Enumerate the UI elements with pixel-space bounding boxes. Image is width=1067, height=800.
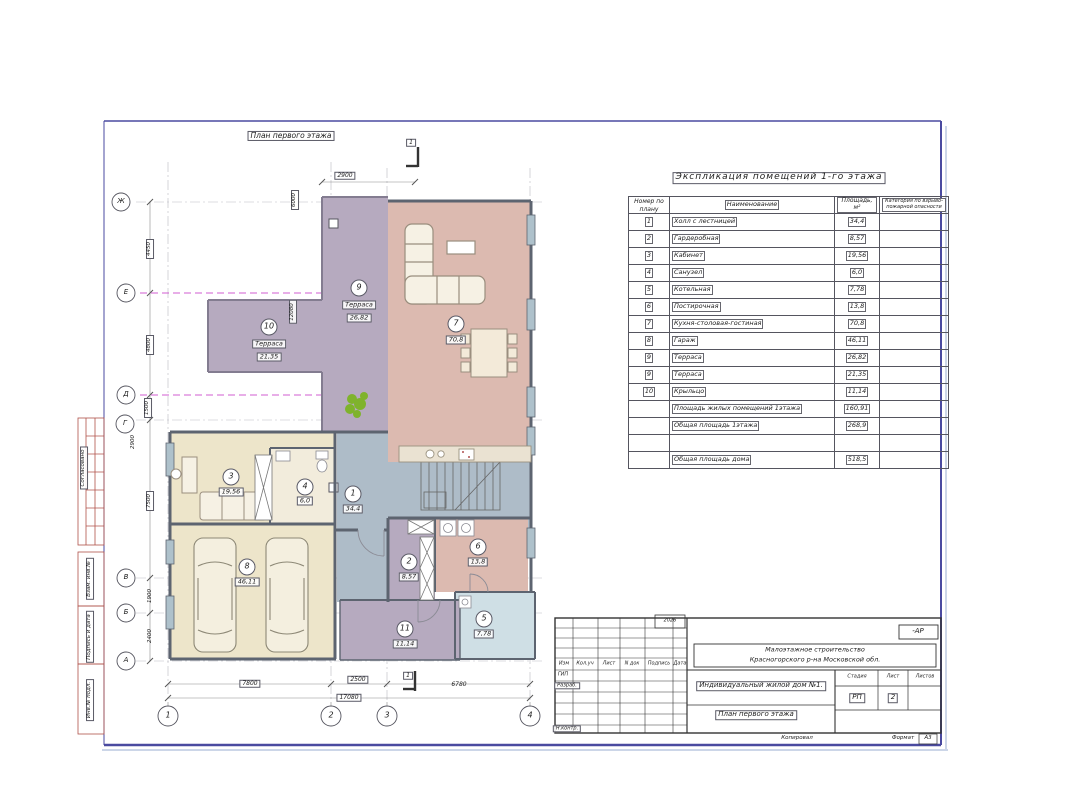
row-num (629, 435, 670, 452)
room-6-area: 13,8 (468, 557, 488, 566)
stamp-year: 2026 (664, 618, 677, 623)
row-area: 26,82 (835, 350, 880, 367)
room-4-number: 4 (297, 479, 314, 496)
row-area (835, 435, 880, 452)
stamp-stage-label: Стадия (847, 674, 866, 679)
cell-num: 4 (645, 268, 653, 277)
cell-area: 8,57 (848, 234, 866, 243)
axis-left-e: Е (124, 289, 128, 297)
room-3-area: 19,56 (219, 487, 244, 496)
section-mark-top: 1 (406, 139, 416, 147)
cell-area: 11,14 (846, 387, 869, 396)
margin-label-inv-podl: Инв.№ подл. (86, 679, 94, 721)
stamp-object-name: Индивидуальный жилой дом №1. (696, 681, 826, 691)
section-mark-bottom: 1 (403, 672, 413, 680)
row-category (880, 265, 949, 282)
table-row: 10Крыльцо11,14 (629, 384, 949, 401)
axis-left-d: Д (123, 391, 128, 399)
dim-bottom-3: 6780 (451, 682, 466, 688)
row-num: 9 (629, 350, 670, 367)
dim-top: 2900 (334, 172, 355, 180)
table-row: 8Гараж46,11 (629, 333, 949, 350)
room-8-area: 46,11 (235, 577, 260, 586)
row-name: Общая площадь 1этажа (670, 418, 835, 435)
row-category (880, 299, 949, 316)
row-name: Площадь жилых помещений 1этажа (670, 401, 835, 418)
room-11-number: 11 (397, 621, 414, 638)
cell-area: 19,56 (846, 251, 869, 260)
table-row: 9Терраса21,35 (629, 367, 949, 384)
row-category (880, 350, 949, 367)
row-num: 9 (629, 367, 670, 384)
row-name: Холл с лестницей (670, 214, 835, 231)
row-category (880, 248, 949, 265)
row-name: Терраса (670, 350, 835, 367)
room-7-number: 7 (448, 316, 465, 333)
table-row: 4Санузел6,0 (629, 265, 949, 282)
cell-area: 160,91 (844, 404, 871, 413)
header-area-text: Площадь, м² (837, 197, 877, 213)
dim-bottom-2: 2500 (347, 676, 368, 684)
row-area: 19,56 (835, 248, 880, 265)
dim-bottom-total: 17080 (336, 694, 361, 702)
header-category-text: Категория по взрыво-пожарной опасности (882, 198, 946, 212)
row-category (880, 367, 949, 384)
room-10-area: 21,35 (257, 352, 282, 361)
row-num (629, 452, 670, 469)
dim-bottom-1: 7800 (239, 680, 260, 688)
dim-left-4: 7500 (146, 491, 154, 511)
row-num: 10 (629, 384, 670, 401)
cell-num: 9 (645, 353, 653, 362)
cell-num: 5 (645, 285, 653, 294)
stamp-role-gip: ГИП (558, 672, 568, 677)
cell-num: 3 (645, 251, 653, 260)
stamp-stage-value: РП (849, 693, 865, 703)
table-row-summary: Общая площадь 1этажа268,9 (629, 418, 949, 435)
table-row-summary: Площадь жилых помещений 1этажа160,91 (629, 401, 949, 418)
header-num: Номер по плану (629, 197, 670, 214)
row-num (629, 401, 670, 418)
cell-area: 26,82 (846, 353, 869, 362)
row-category (880, 231, 949, 248)
row-area: 34,4 (835, 214, 880, 231)
stamp-format-label: Формат (892, 736, 914, 742)
room-4-area: 6,0 (297, 496, 313, 505)
stamp-listov-label: Листов (916, 674, 935, 679)
stamp-list-label: Лист (887, 674, 900, 679)
stamp-role-nkontr: Н.контр. (553, 725, 581, 732)
row-name: Кабинет (670, 248, 835, 265)
row-name: Постирочная (670, 299, 835, 316)
stamp-col-list: Лист (603, 661, 616, 666)
dim-left-3: 1500 (144, 398, 152, 418)
room-2-number: 2 (401, 554, 418, 571)
room-11-area: 11,14 (393, 639, 418, 648)
cell-name: Общая площадь дома (672, 455, 751, 464)
table-row: 5Котельная7,78 (629, 282, 949, 299)
margin-label-podpis-data: Подпись и дата (86, 611, 94, 663)
room-5-number: 5 (476, 611, 493, 628)
table-row: 3Кабинет19,56 (629, 248, 949, 265)
row-num: 3 (629, 248, 670, 265)
stamp-doc-title: План первого этажа (715, 710, 797, 720)
stamp-org-line1: Малоэтажное строительство (765, 646, 865, 653)
row-area: 268,9 (835, 418, 880, 435)
room-3-number: 3 (223, 469, 240, 486)
row-num: 1 (629, 214, 670, 231)
row-area: 46,11 (835, 333, 880, 350)
room-6-number: 6 (470, 539, 487, 556)
room-9-area: 26,82 (347, 313, 372, 322)
dim-left-extra: 2900 (131, 435, 137, 449)
cell-name: Кухня-столовая-гостиная (672, 319, 763, 328)
row-category (880, 316, 949, 333)
cell-area: 21,35 (846, 370, 869, 379)
row-name: Гардеробная (670, 231, 835, 248)
row-area: 11,14 (835, 384, 880, 401)
axis-left-a: А (124, 657, 129, 665)
cell-name: Терраса (672, 353, 704, 362)
cell-name: Крыльцо (672, 387, 706, 396)
room-7-area: 70,8 (446, 335, 466, 344)
stamp-format-value: А3 (924, 736, 931, 742)
cell-name: Санузел (672, 268, 704, 277)
plan-title: План первого этажа (248, 131, 335, 141)
row-area: 160,91 (835, 401, 880, 418)
cell-name: Котельная (672, 285, 713, 294)
cell-area: 518,5 (846, 455, 869, 464)
explication-table: Номер по плану Наименование Площадь, м² … (628, 196, 949, 469)
row-category (880, 333, 949, 350)
stamp-col-izm: Изм (559, 661, 569, 666)
cell-name: Постирочная (672, 302, 721, 311)
dim-vert-6000: 6000 (291, 190, 299, 210)
axis-bottom-1: 1 (165, 712, 170, 721)
axis-bottom-2: 2 (328, 712, 333, 721)
dim-left-6: 2400 (148, 629, 154, 643)
row-name: Общая площадь дома (670, 452, 835, 469)
row-name (670, 435, 835, 452)
margin-label-vzam-inv: Взам. инв.№ (86, 558, 94, 600)
cell-name: Гараж (672, 336, 698, 345)
cell-num: 6 (645, 302, 653, 311)
margin-label-soglasovano: Согласовано (80, 447, 88, 490)
stamp-org-line2: Красногорского р-на Московской обл. (750, 656, 881, 663)
cell-area: 7,78 (848, 285, 866, 294)
header-num-text: Номер по плану (634, 198, 664, 213)
cell-name: Общая площадь 1этажа (672, 421, 759, 430)
cell-area: 6,0 (850, 268, 864, 277)
row-num: 4 (629, 265, 670, 282)
header-area: Площадь, м² (835, 197, 880, 214)
cell-area: 70,8 (848, 319, 866, 328)
cell-num: 2 (645, 234, 653, 243)
cell-name: Площадь жилых помещений 1этажа (672, 404, 802, 413)
dim-left-1: 4450 (146, 239, 154, 259)
room-10-name: Терраса (252, 339, 286, 348)
room-9-name: Терраса (342, 300, 376, 309)
row-num: 6 (629, 299, 670, 316)
table-row: 7Кухня-столовая-гостиная70,8 (629, 316, 949, 333)
cell-name: Кабинет (672, 251, 705, 260)
cell-num: 8 (645, 336, 653, 345)
row-name: Терраса (670, 367, 835, 384)
axis-left-v: В (124, 574, 129, 582)
table-row: 6Постирочная13,8 (629, 299, 949, 316)
table-row-total: Общая площадь дома518,5 (629, 452, 949, 469)
header-category: Категория по взрыво-пожарной опасности (880, 197, 949, 214)
header-name: Наименование (670, 197, 835, 214)
row-category (880, 435, 949, 452)
row-name: Крыльцо (670, 384, 835, 401)
stamp-col-data: Дата (674, 661, 687, 666)
row-area: 8,57 (835, 231, 880, 248)
room-10-number: 10 (261, 319, 278, 336)
row-area: 21,35 (835, 367, 880, 384)
stamp-kopiroval: Копировал (781, 736, 812, 742)
axis-left-zh: Ж (117, 198, 125, 206)
cell-name: Терраса (672, 370, 704, 379)
cell-area: 268,9 (846, 421, 869, 430)
dim-vert-12080: 12080 (289, 300, 297, 324)
explication-title: Экспликация помещений 1-го этажа (673, 172, 886, 184)
row-num: 5 (629, 282, 670, 299)
table-row: 9Терраса26,82 (629, 350, 949, 367)
row-area: 70,8 (835, 316, 880, 333)
cell-num: 9 (645, 370, 653, 379)
room-1-number: 1 (345, 486, 362, 503)
table-row: 2Гардеробная8,57 (629, 231, 949, 248)
row-area: 518,5 (835, 452, 880, 469)
room-8-number: 8 (239, 559, 256, 576)
explication-header-row: Номер по плану Наименование Площадь, м² … (629, 197, 949, 214)
cell-num: 7 (645, 319, 653, 328)
row-num (629, 418, 670, 435)
row-name: Котельная (670, 282, 835, 299)
room-1-area: 34,4 (343, 504, 363, 513)
stamp-col-koluch: Кол.уч (576, 661, 593, 666)
axis-bottom-3: 3 (384, 712, 389, 721)
table-row: 1Холл с лестницей34,4 (629, 214, 949, 231)
row-category (880, 214, 949, 231)
stamp-role-razrab: Разраб. (554, 682, 580, 689)
row-category (880, 401, 949, 418)
row-num: 2 (629, 231, 670, 248)
stamp-code: -АР (912, 628, 924, 636)
drawing-sheet: { "colors": { "room_pink": "#dcbab0", "r… (0, 0, 1067, 800)
stamp-col-ndoc: N док (625, 661, 640, 666)
dim-left-2: 4800 (146, 335, 154, 355)
row-category (880, 384, 949, 401)
table-row-empty (629, 435, 949, 452)
axis-bottom-4: 4 (527, 712, 532, 721)
stamp-col-podpis: Подпись (648, 661, 671, 666)
row-category (880, 418, 949, 435)
row-name: Гараж (670, 333, 835, 350)
cell-name: Холл с лестницей (672, 217, 737, 226)
cell-num: 1 (645, 217, 653, 226)
cell-area: 34,4 (848, 217, 866, 226)
room-9-number: 9 (351, 280, 368, 297)
row-area: 7,78 (835, 282, 880, 299)
dim-left-5: 1900 (148, 589, 154, 603)
cell-area: 46,11 (846, 336, 869, 345)
cell-area: 13,8 (848, 302, 866, 311)
row-area: 13,8 (835, 299, 880, 316)
row-name: Санузел (670, 265, 835, 282)
header-name-text: Наименование (725, 200, 780, 209)
row-num: 7 (629, 316, 670, 333)
row-area: 6,0 (835, 265, 880, 282)
stamp-sheet-number: 2 (888, 693, 898, 703)
room-5-area: 7,78 (474, 629, 494, 638)
row-category (880, 452, 949, 469)
room-2-area: 8,57 (399, 572, 419, 581)
row-category (880, 282, 949, 299)
row-num: 8 (629, 333, 670, 350)
axis-left-b: Б (124, 609, 129, 617)
cell-name: Гардеробная (672, 234, 720, 243)
cell-num: 10 (643, 387, 655, 396)
row-name: Кухня-столовая-гостиная (670, 316, 835, 333)
axis-left-g: Г (123, 420, 127, 428)
